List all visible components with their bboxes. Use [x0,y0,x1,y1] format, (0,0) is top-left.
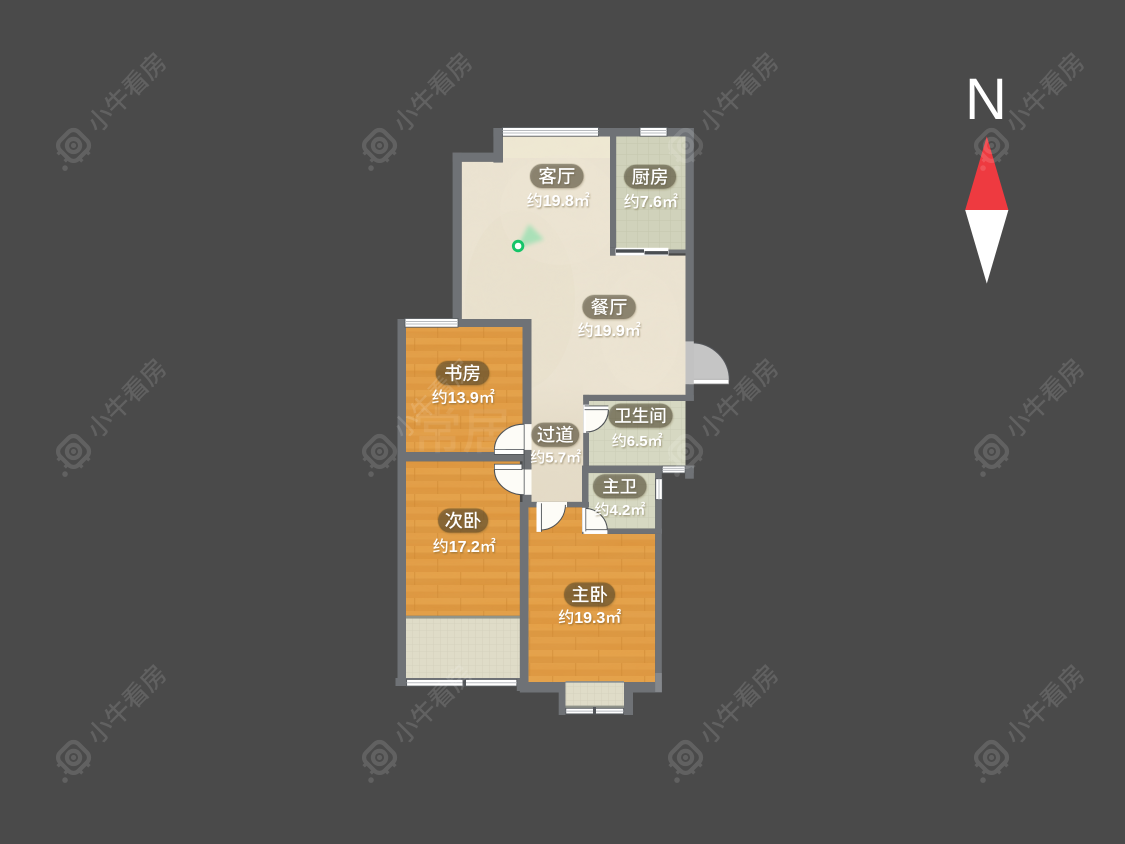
svg-text:7.6: 7.6 [640,194,662,211]
svg-text:19.3: 19.3 [574,610,605,627]
svg-text:6.5: 6.5 [627,433,648,450]
svg-text:19.9: 19.9 [594,323,625,340]
svg-text:N: N [965,67,1007,132]
svg-text:19.8: 19.8 [543,193,574,210]
svg-text:5.7: 5.7 [545,449,566,466]
svg-text:17.2: 17.2 [449,539,480,556]
svg-text:4.2: 4.2 [610,502,631,519]
